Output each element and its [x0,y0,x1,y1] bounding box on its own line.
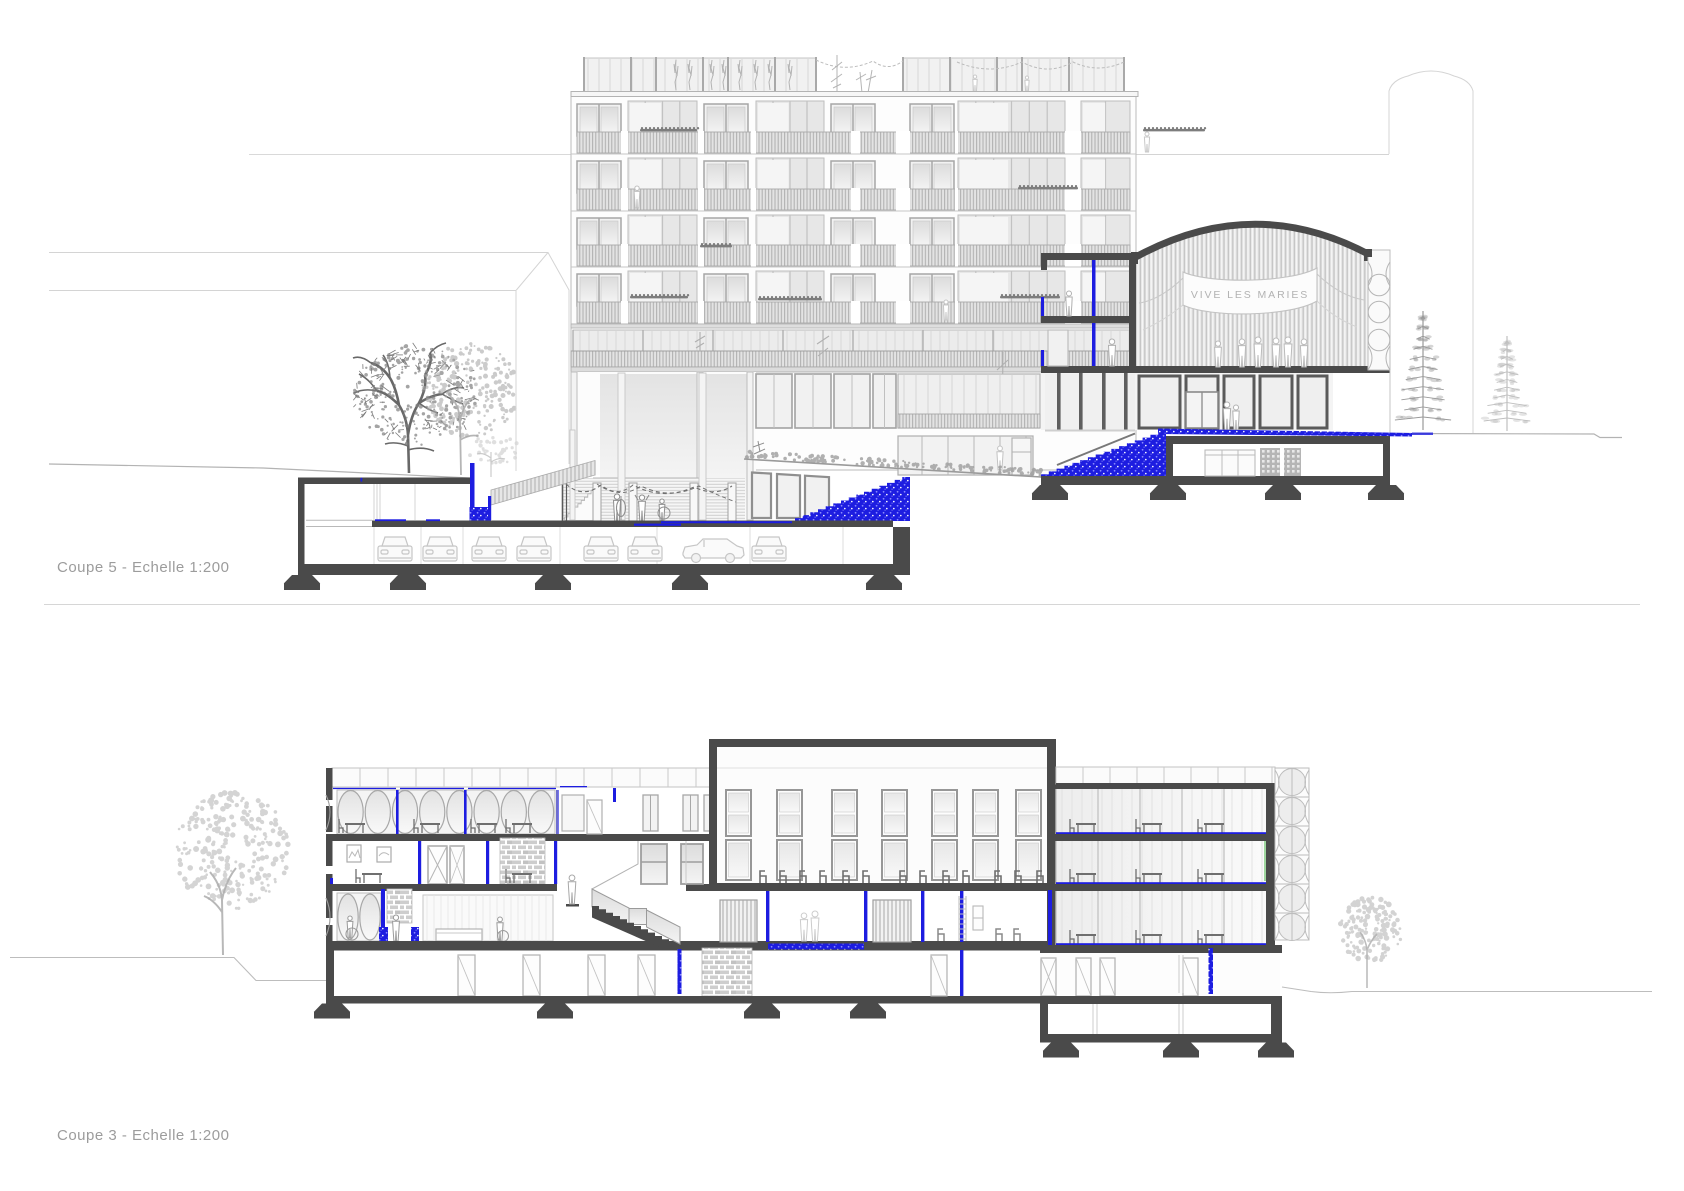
svg-text:Coupe 5 - Echelle 1:200: Coupe 5 - Echelle 1:200 [57,559,229,576]
svg-text:Coupe 3 - Echelle 1:200: Coupe 3 - Echelle 1:200 [57,1127,229,1144]
svg-text:VIVE LES MARIES: VIVE LES MARIES [1191,289,1309,301]
